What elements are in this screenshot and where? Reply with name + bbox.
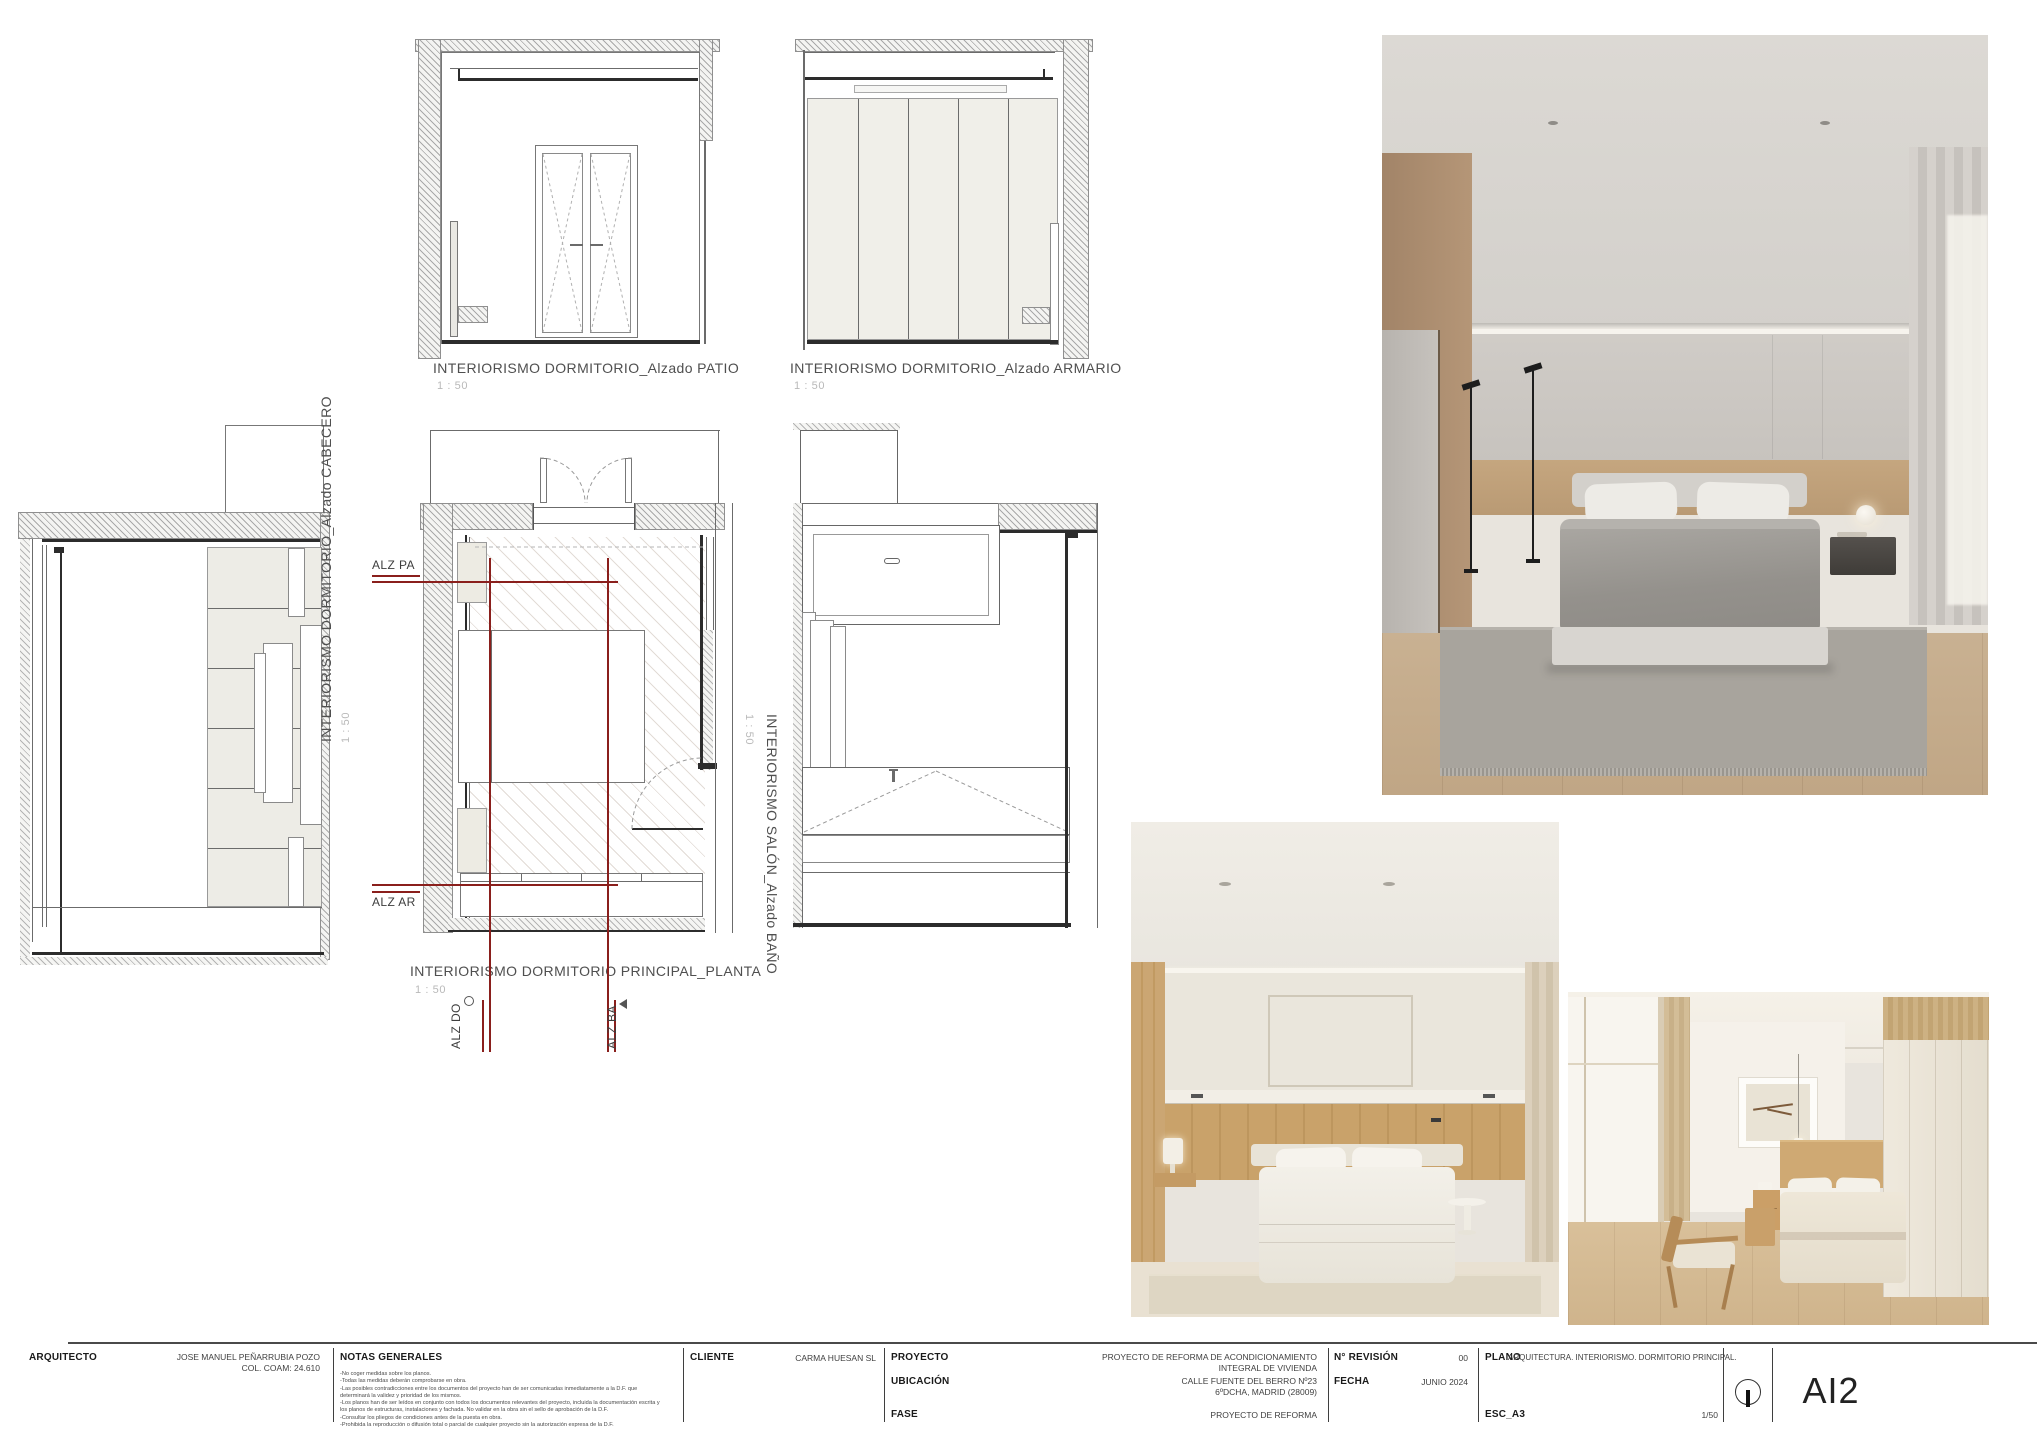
socket — [1483, 1094, 1495, 1098]
wall-hatch — [795, 39, 1093, 52]
elevation-bano-drawing — [785, 420, 1100, 935]
titleblock-divider — [1478, 1348, 1479, 1422]
curtain-line — [46, 545, 47, 927]
ubicacion-label: UBICACIÓN — [891, 1376, 949, 1387]
elevation-cabecero-drawing — [18, 425, 332, 970]
cove-edge — [805, 77, 1053, 80]
elevation-armario-drawing — [795, 33, 1093, 363]
blanket-fold — [1560, 519, 1820, 529]
cove-step — [1043, 69, 1045, 79]
titleblock-divider — [1723, 1348, 1724, 1422]
armchair-cushion — [1673, 1242, 1735, 1268]
nota-line: -Todas las medidas deberán comprobarse e… — [340, 1378, 660, 1385]
blanket-fold — [1259, 1242, 1455, 1243]
floor-lamp-base — [1464, 569, 1478, 573]
floor-hatch — [20, 957, 328, 965]
cliente-value: CARMA HUESAN SL — [716, 1353, 876, 1364]
fase-value: PROYECTO DE REFORMA — [1167, 1410, 1317, 1421]
fase-label: FASE — [891, 1409, 918, 1420]
side-strip — [1050, 223, 1059, 345]
nightstand-tray — [1837, 532, 1867, 537]
drawing-title-armario: INTERIORISMO DORMITORIO_Alzado ARMARIO — [790, 360, 1122, 376]
drawing-title-cabecero: INTERIORISMO DORMITORIO_Alzado CABECERO — [318, 396, 334, 742]
section-line-short — [372, 575, 420, 577]
downlight — [1820, 121, 1830, 125]
revision-value: 00 — [1408, 1353, 1468, 1364]
drawing-title-bano: INTERIORISMO SALÓN_Alzado BAÑO — [764, 714, 780, 974]
wall-seam — [1772, 335, 1773, 459]
drawing-scale-cabecero: 1 : 50 — [338, 712, 354, 743]
nota-line: -Consultar los pliegos de condiciones an… — [340, 1415, 660, 1422]
panel-seam — [208, 848, 321, 849]
bed-profile — [254, 653, 266, 793]
shelf-hatch — [1022, 307, 1050, 324]
section-line-short — [372, 891, 420, 893]
notas-block: -No coger medidas sobre los planos. -Tod… — [340, 1371, 660, 1429]
floor-lamp-pole — [1470, 387, 1472, 572]
wall-art — [1738, 1077, 1818, 1148]
wardrobe-panels — [807, 98, 1058, 340]
ubicacion-value: CALLE FUENTE DEL BERRO Nº23 6ºDCHA, MADR… — [1162, 1376, 1317, 1398]
table-lamp-base — [1170, 1164, 1175, 1173]
wall-line — [32, 539, 33, 942]
shaft-above — [225, 425, 324, 512]
section-line-long — [372, 884, 618, 886]
pendant-cord — [1798, 1054, 1799, 1139]
render-photo-main-bedroom — [1382, 35, 1988, 795]
esc-value: 1/50 — [1658, 1410, 1718, 1421]
plan-dormitorio-drawing — [420, 425, 735, 940]
rod-bracket — [54, 547, 64, 553]
drawing-scale-armario: 1 : 50 — [794, 380, 825, 392]
studio-logo-stem — [1746, 1390, 1750, 1407]
window-light — [1947, 215, 1988, 605]
arquitecto-name: JOSE MANUEL PEÑARRUBIA POZO — [100, 1352, 320, 1363]
panel-seam — [908, 99, 909, 339]
blanket-fold — [1780, 1232, 1906, 1240]
titleblock-rule — [68, 1342, 2037, 1344]
section-line-short — [482, 1000, 484, 1052]
titleblock-divider — [1772, 1348, 1773, 1422]
shelf-hatch — [458, 306, 488, 323]
arquitecto-collegiate: COL. COAM: 24.610 — [100, 1363, 320, 1374]
ceiling-edge — [42, 539, 330, 542]
floor-lamp-pole — [1532, 370, 1534, 562]
door-handle — [570, 244, 583, 246]
downlight — [1548, 121, 1558, 125]
cove-line — [805, 52, 1055, 53]
plan-sheet: { "drawings": { "patio": {"title": "INTE… — [0, 0, 2037, 1440]
arquitecto-value: JOSE MANUEL PEÑARRUBIA POZO COL. COAM: 2… — [100, 1352, 320, 1374]
door-handle — [590, 244, 603, 246]
curtains — [1525, 962, 1559, 1294]
niche-shelf — [1165, 1090, 1525, 1104]
drawing-title-planta: INTERIORISMO DORMITORIO PRINCIPAL_PLANTA — [410, 963, 761, 979]
table-lamp — [1163, 1138, 1183, 1164]
nota-line: -Las posibles contradicciones entre los … — [340, 1386, 660, 1401]
section-line-long — [489, 558, 491, 1052]
revision-label: N° REVISIÓN — [1334, 1352, 1398, 1363]
curtain — [1664, 997, 1690, 1221]
back-wall — [1472, 334, 1909, 460]
esc-label: ESC_A3 — [1485, 1409, 1525, 1420]
decor-item — [1758, 1182, 1772, 1190]
panel-seam — [958, 99, 959, 339]
wall-art — [1268, 995, 1413, 1087]
window — [1568, 997, 1663, 1227]
bed-mattress — [1259, 1167, 1455, 1283]
titleblock-divider — [1328, 1348, 1329, 1422]
nota-line: -Prohibida la reproducción o difusión to… — [340, 1422, 660, 1429]
proyecto-value: PROYECTO DE REFORMA DE ACONDICIONAMIENTO… — [1087, 1352, 1317, 1374]
section-marker-alz-ar: ALZ AR — [372, 895, 416, 909]
stool — [1745, 1208, 1775, 1246]
socket — [1191, 1094, 1203, 1098]
blanket-fold — [1259, 1224, 1455, 1225]
side-table-base — [1458, 1230, 1476, 1235]
curtain-line — [42, 545, 43, 927]
section-marker-alz-do: ALZ DO — [448, 1003, 464, 1049]
drawing-scale-patio: 1 : 50 — [437, 380, 468, 392]
notas-label: NOTAS GENERALES — [340, 1352, 442, 1363]
wall-line — [803, 50, 805, 350]
proyecto-label: PROYECTO — [891, 1352, 949, 1363]
drawing-scale-planta: 1 : 50 — [415, 984, 446, 996]
panel-seam — [858, 99, 859, 339]
downlight — [1219, 882, 1231, 886]
titleblock-divider — [884, 1348, 885, 1422]
titleblock-divider — [333, 1348, 334, 1422]
reading-light — [1431, 1118, 1441, 1122]
fecha-value: JUNIO 2024 — [1388, 1377, 1468, 1388]
plano-value: ARQUITECTURA. INTERIORISMO. DORMITORIO P… — [1508, 1353, 1718, 1363]
section-marker-alz-pa: ALZ PA — [372, 558, 415, 572]
rug-fringe — [1440, 768, 1927, 776]
shelf-profile — [288, 837, 304, 907]
drawing-title-patio: INTERIORISMO DORMITORIO_Alzado PATIO — [433, 360, 739, 376]
render-photo-bedroom-perspective — [1568, 992, 1989, 1325]
left-wood-panels — [1131, 962, 1165, 1294]
radiator-panel — [450, 221, 458, 337]
outer-wall-line — [1097, 503, 1098, 928]
skirting-line — [802, 872, 1070, 873]
floor-baseline — [807, 340, 1058, 344]
ceiling — [1131, 822, 1559, 970]
floor-lamp-base — [1526, 559, 1540, 563]
wall-notch — [1068, 532, 1078, 538]
section-line-long — [607, 558, 609, 1052]
render-photo-bedroom-front — [1131, 822, 1559, 1317]
bed-blanket — [1560, 519, 1820, 631]
sheet-code: AI2 — [1776, 1370, 1886, 1412]
bed-base — [1552, 627, 1828, 665]
wall-hatch — [1063, 39, 1089, 359]
nota-line: -Los planos han de ser leídos en conjunt… — [340, 1400, 660, 1415]
ceiling — [1382, 35, 1988, 331]
window-mullion — [1568, 1063, 1663, 1065]
elevation-patio-drawing — [415, 33, 720, 363]
section-line-long — [372, 581, 618, 583]
nota-line: -No coger medidas sobre los planos. — [340, 1371, 660, 1378]
drawing-scale-bano: 1 : 50 — [741, 714, 757, 745]
floating-nightstand — [1154, 1173, 1196, 1187]
wood-slat-band — [1883, 997, 1989, 1040]
floor-baseline — [793, 923, 1071, 927]
shelf-profile — [288, 548, 305, 617]
floor-baseline — [442, 340, 700, 344]
dark-wall-line — [1065, 532, 1068, 928]
floor-baseline — [32, 952, 324, 955]
wall-hatch — [20, 539, 30, 957]
section-circle — [464, 996, 474, 1006]
section-arrow — [619, 999, 627, 1009]
section-marker-alz-ba: ALZ BA — [604, 1005, 620, 1049]
plan-swing-arcs — [420, 425, 735, 940]
downlight — [1383, 882, 1395, 886]
side-table-stem — [1464, 1205, 1471, 1232]
window-mullion — [1584, 997, 1586, 1227]
ceiling-hatch — [18, 512, 330, 539]
panel-seam — [1008, 99, 1009, 339]
titleblock-divider — [683, 1348, 684, 1422]
fecha-label: FECHA — [1334, 1376, 1369, 1387]
bed-profile — [263, 643, 293, 803]
nightstand — [1830, 537, 1896, 575]
wall-seam — [1822, 335, 1823, 459]
dark-vertical — [60, 548, 62, 953]
drawer-band — [802, 835, 1070, 863]
led-slot — [854, 85, 1007, 93]
skirting-line — [32, 907, 322, 908]
mirror-panel — [1382, 330, 1440, 665]
sphere-lamp — [1856, 505, 1876, 525]
arquitecto-label: ARQUITECTO — [29, 1352, 97, 1363]
